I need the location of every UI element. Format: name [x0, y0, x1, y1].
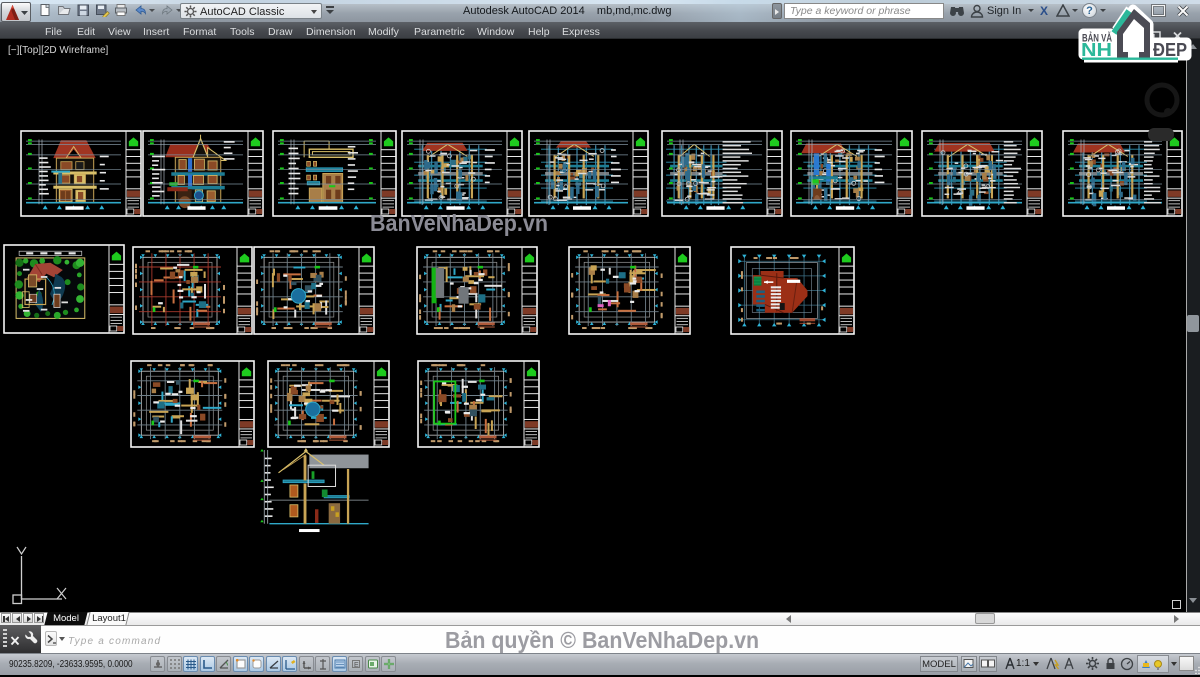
svg-text:ĐẸP: ĐẸP	[1153, 40, 1187, 60]
svg-text:E: E	[354, 662, 359, 669]
svg-text:BanVeNhaDep.vn: BanVeNhaDep.vn	[370, 210, 548, 236]
svg-text:NH: NH	[1081, 40, 1112, 60]
